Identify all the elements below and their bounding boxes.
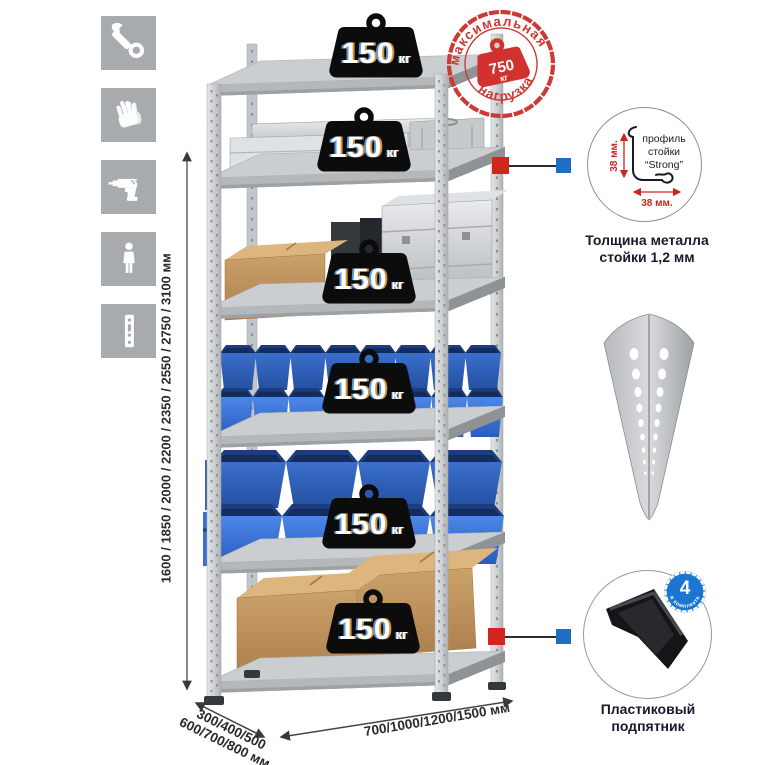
height-dimension-line xyxy=(180,146,194,696)
profile-detail-circle: 38 мм. 38 мм. профиль стойки “Strong” xyxy=(587,107,702,222)
load-badge-shelf-6: 150кг xyxy=(321,588,425,658)
person-tile xyxy=(101,232,156,286)
gloves-icon xyxy=(107,93,151,137)
angle-post-image xyxy=(597,310,702,525)
perforated-profile-icon xyxy=(107,309,151,353)
profile-callout-connector xyxy=(492,157,571,174)
callout-line xyxy=(505,636,556,638)
callout-blue-square xyxy=(556,158,571,173)
profile-dim-vertical: 38 мм. xyxy=(609,140,620,172)
rack-post-front-right xyxy=(435,74,448,694)
callout-red-square xyxy=(488,628,505,645)
load-badge-shelf-2: 150кг xyxy=(312,106,416,176)
profile-label-3: “Strong” xyxy=(645,159,683,171)
rack-post-front-left xyxy=(207,84,221,698)
profile-cross-section-drawing: 38 мм. 38 мм. профиль стойки “Strong” xyxy=(588,108,700,220)
callout-line xyxy=(509,165,556,167)
max-load-stamp: максимальная нагрузка 750 кг xyxy=(432,0,570,133)
foot-callout-connector xyxy=(488,628,571,645)
wrench-icon xyxy=(107,21,151,65)
drill-icon xyxy=(107,165,151,209)
drill-tile xyxy=(101,160,156,214)
load-badge-shelf-4: 150кг xyxy=(317,348,421,418)
wrench-tile xyxy=(101,16,156,70)
callout-blue-square xyxy=(556,629,571,644)
load-unit: кг xyxy=(399,51,411,66)
person-height-icon xyxy=(107,237,151,281)
load-badge-shelf-5: 150кг xyxy=(317,483,421,553)
profile-label-1: профиль xyxy=(642,133,686,145)
profile-tile xyxy=(101,304,156,358)
profile-label-2: стойки xyxy=(648,146,680,158)
badge-count-text: 4 xyxy=(680,578,691,599)
callout-red-square xyxy=(492,157,509,174)
profile-caption: Толщина металла стойки 1,2 мм xyxy=(572,232,722,266)
load-value: 150 xyxy=(342,37,395,70)
stamp-weight-icon xyxy=(491,39,503,51)
shelving-infographic: 150кг 150кг 150кг 150кг 150кг 150кг макс… xyxy=(0,0,765,765)
load-badge-shelf-3: 150кг xyxy=(317,238,421,308)
profile-dim-horizontal: 38 мм. xyxy=(641,198,673,209)
foot-caption: Пластиковый подпятник xyxy=(582,701,714,735)
included-count-badge: 4 в комплекте xyxy=(663,570,707,614)
load-badge-shelf-1: 150кг xyxy=(324,12,428,82)
gloves-tile xyxy=(101,88,156,142)
height-dimension-label: 1600 / 1850 / 2000 / 2200 / 2350 / 2550 … xyxy=(160,147,175,689)
